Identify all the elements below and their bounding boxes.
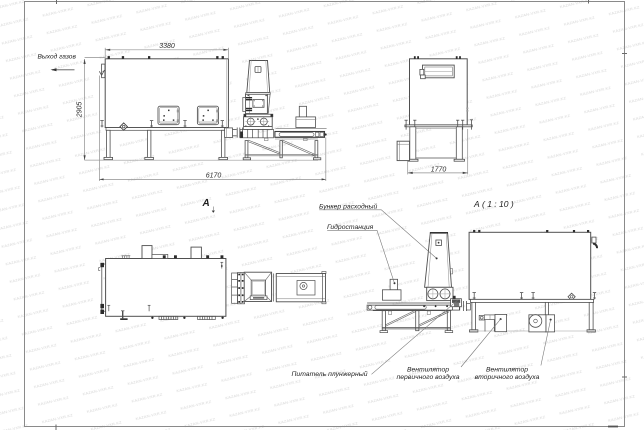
svg-text:Питатель плунжерный: Питатель плунжерный bbox=[292, 370, 368, 378]
svg-text:первичного воздуха: первичного воздуха bbox=[397, 373, 460, 381]
svg-text:вторичного воздуха: вторичного воздуха bbox=[475, 373, 540, 381]
svg-text:6170: 6170 bbox=[206, 173, 222, 180]
svg-text:1770: 1770 bbox=[431, 166, 447, 173]
svg-text:А: А bbox=[202, 198, 210, 209]
svg-text:Гидростанция: Гидростанция bbox=[327, 223, 374, 231]
svg-text:Вентилятор: Вентилятор bbox=[486, 367, 528, 374]
svg-text:2905: 2905 bbox=[77, 102, 84, 119]
svg-text:Вентилятор: Вентилятор bbox=[407, 367, 449, 374]
svg-text:А ( 1 : 10 ): А ( 1 : 10 ) bbox=[473, 199, 514, 209]
svg-text:Бункер расходный: Бункер расходный bbox=[319, 202, 377, 210]
svg-text:3380: 3380 bbox=[159, 43, 175, 50]
svg-text:Выход газов: Выход газов bbox=[38, 53, 77, 61]
